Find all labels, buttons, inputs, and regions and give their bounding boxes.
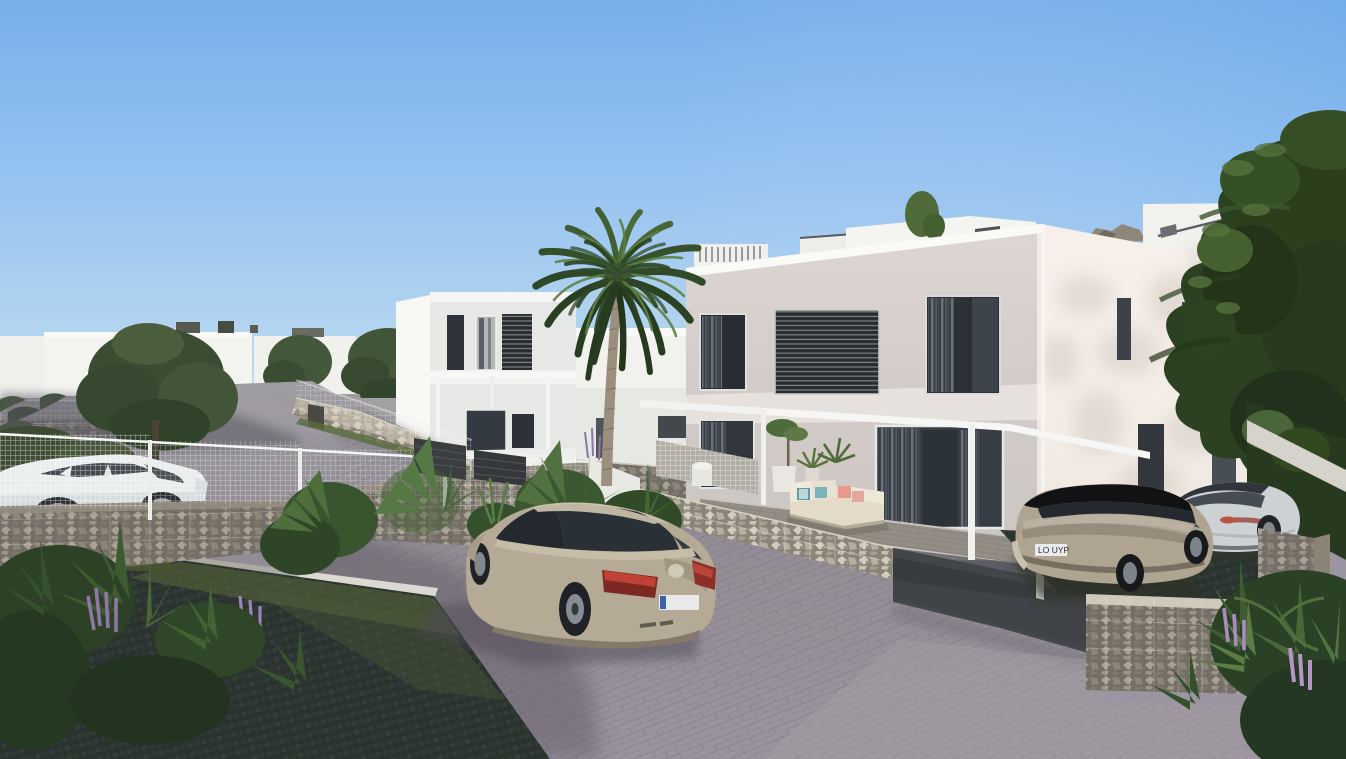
svg-text:LO UYP: LO UYP <box>1038 545 1070 555</box>
